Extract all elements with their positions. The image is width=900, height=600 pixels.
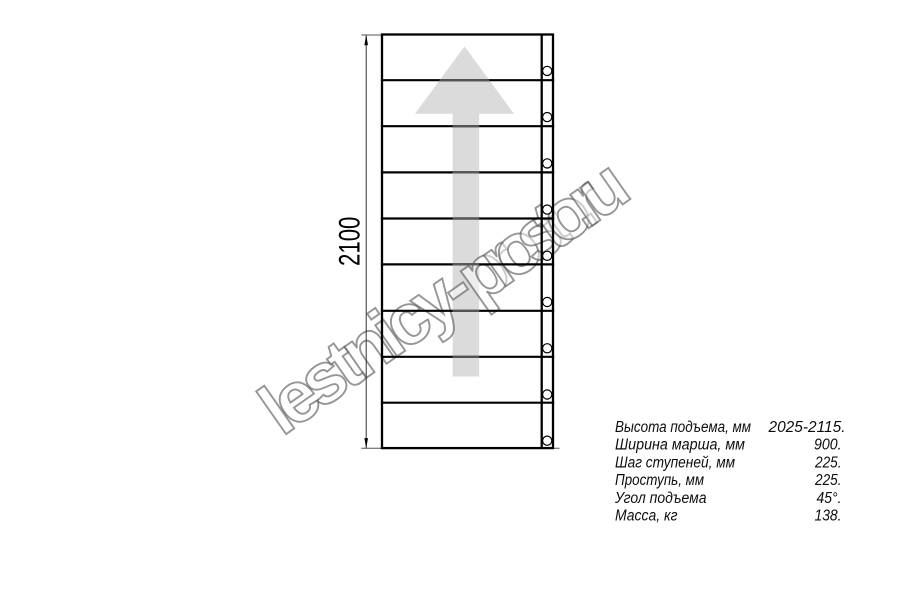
svg-text:Ширина марша, мм: Ширина марша, мм [615, 437, 745, 454]
svg-text:2100: 2100 [334, 217, 367, 266]
svg-text:Шаг ступеней, мм: Шаг ступеней, мм [615, 454, 735, 471]
svg-text:Угол подъема: Угол подъема [614, 490, 707, 507]
svg-text:Проступь, мм: Проступь, мм [615, 472, 704, 489]
svg-text:Высота подъема, мм: Высота подъема, мм [615, 419, 751, 436]
svg-text:225.: 225. [814, 454, 841, 471]
svg-text:225.: 225. [814, 472, 841, 489]
svg-text:138.: 138. [815, 508, 842, 525]
svg-text:Масса, кг: Масса, кг [615, 508, 678, 525]
svg-text:45°.: 45°. [817, 490, 842, 507]
svg-text:2025-2115.: 2025-2115. [768, 419, 846, 436]
svg-text:900.: 900. [814, 437, 842, 454]
